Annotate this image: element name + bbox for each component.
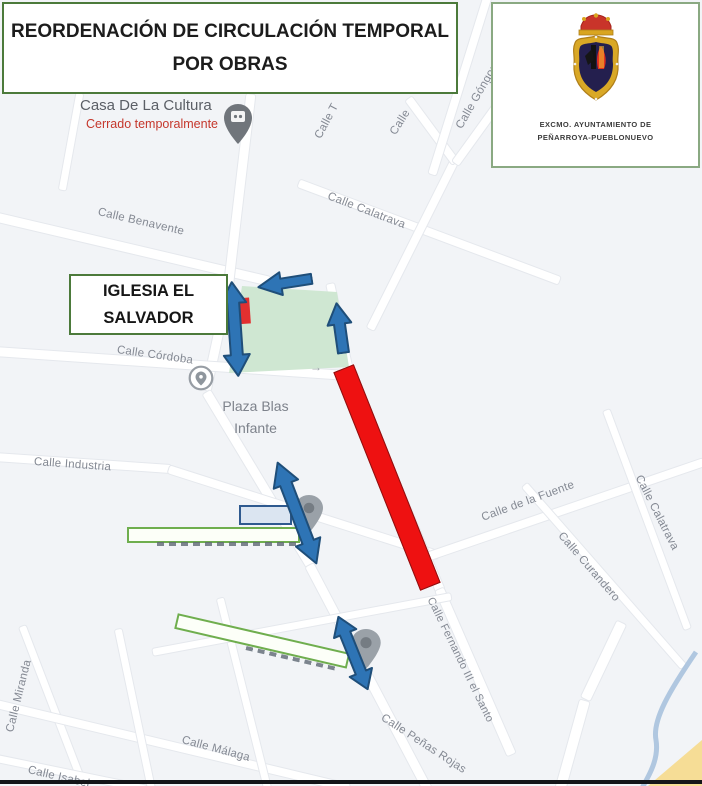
bottom-border-line	[0, 780, 702, 784]
street-label-miranda: Calle Miranda	[4, 659, 34, 734]
poi-plaza-line2: Infante	[203, 418, 308, 440]
traffic-reordering-map: Calle Benavente Calle Calatrava Calle T …	[0, 0, 702, 786]
title-line1: REORDENACIÓN DE CIRCULACIÓN TEMPORAL	[11, 15, 449, 48]
casa-cultura-pin-icon	[223, 103, 253, 145]
crest-caption-line1: EXCMO. AYUNTAMIENTO DE	[537, 119, 653, 132]
iglesia-line2: SALVADOR	[103, 305, 193, 331]
street	[434, 586, 517, 757]
street-label-calle-t: Calle T	[313, 102, 341, 141]
title-banner: REORDENACIÓN DE CIRCULACIÓN TEMPORAL POR…	[2, 2, 458, 94]
poi-plaza-line1: Plaza Blas	[203, 396, 308, 418]
municipal-crest-box: EXCMO. AYUNTAMIENTO DE PEÑARROYA-PUEBLON…	[491, 2, 700, 168]
plaza-circle-pin-icon	[188, 365, 214, 391]
closed-street-bar	[333, 364, 440, 590]
street-label-partial: Calle	[388, 108, 413, 138]
poi-plaza-blas-infante: Plaza Blas Infante	[203, 396, 308, 439]
street-label-fernando: Calle Fernando III el Santo	[425, 595, 496, 724]
poi-casa-cultura-name: Casa De La Cultura	[80, 97, 212, 114]
clipped-label-fragments	[157, 542, 303, 546]
crest-caption-line2: PEÑARROYA-PUEBLONUEVO	[537, 132, 653, 145]
street-label-benavente: Calle Benavente	[97, 206, 186, 238]
street-label-penas-rojas: Calle Peñas Rojas	[379, 712, 468, 776]
coat-of-arms-icon	[557, 12, 635, 116]
crest-caption: EXCMO. AYUNTAMIENTO DE PEÑARROYA-PUEBLON…	[537, 119, 653, 145]
poi-casa-cultura-status: Cerrado temporalmente	[86, 117, 218, 131]
green-cover-bar	[127, 527, 300, 543]
street-label-curandero: Calle Curandero	[555, 530, 621, 604]
iglesia-callout: IGLESIA EL SALVADOR	[69, 274, 228, 335]
street-label-calatrava-top: Calle Calatrava	[326, 190, 407, 231]
one-way-arrow-marker: →	[310, 360, 322, 374]
iglesia-line1: IGLESIA EL	[103, 278, 194, 304]
title-line2: POR OBRAS	[172, 48, 287, 81]
street	[114, 628, 157, 786]
street	[365, 158, 459, 332]
